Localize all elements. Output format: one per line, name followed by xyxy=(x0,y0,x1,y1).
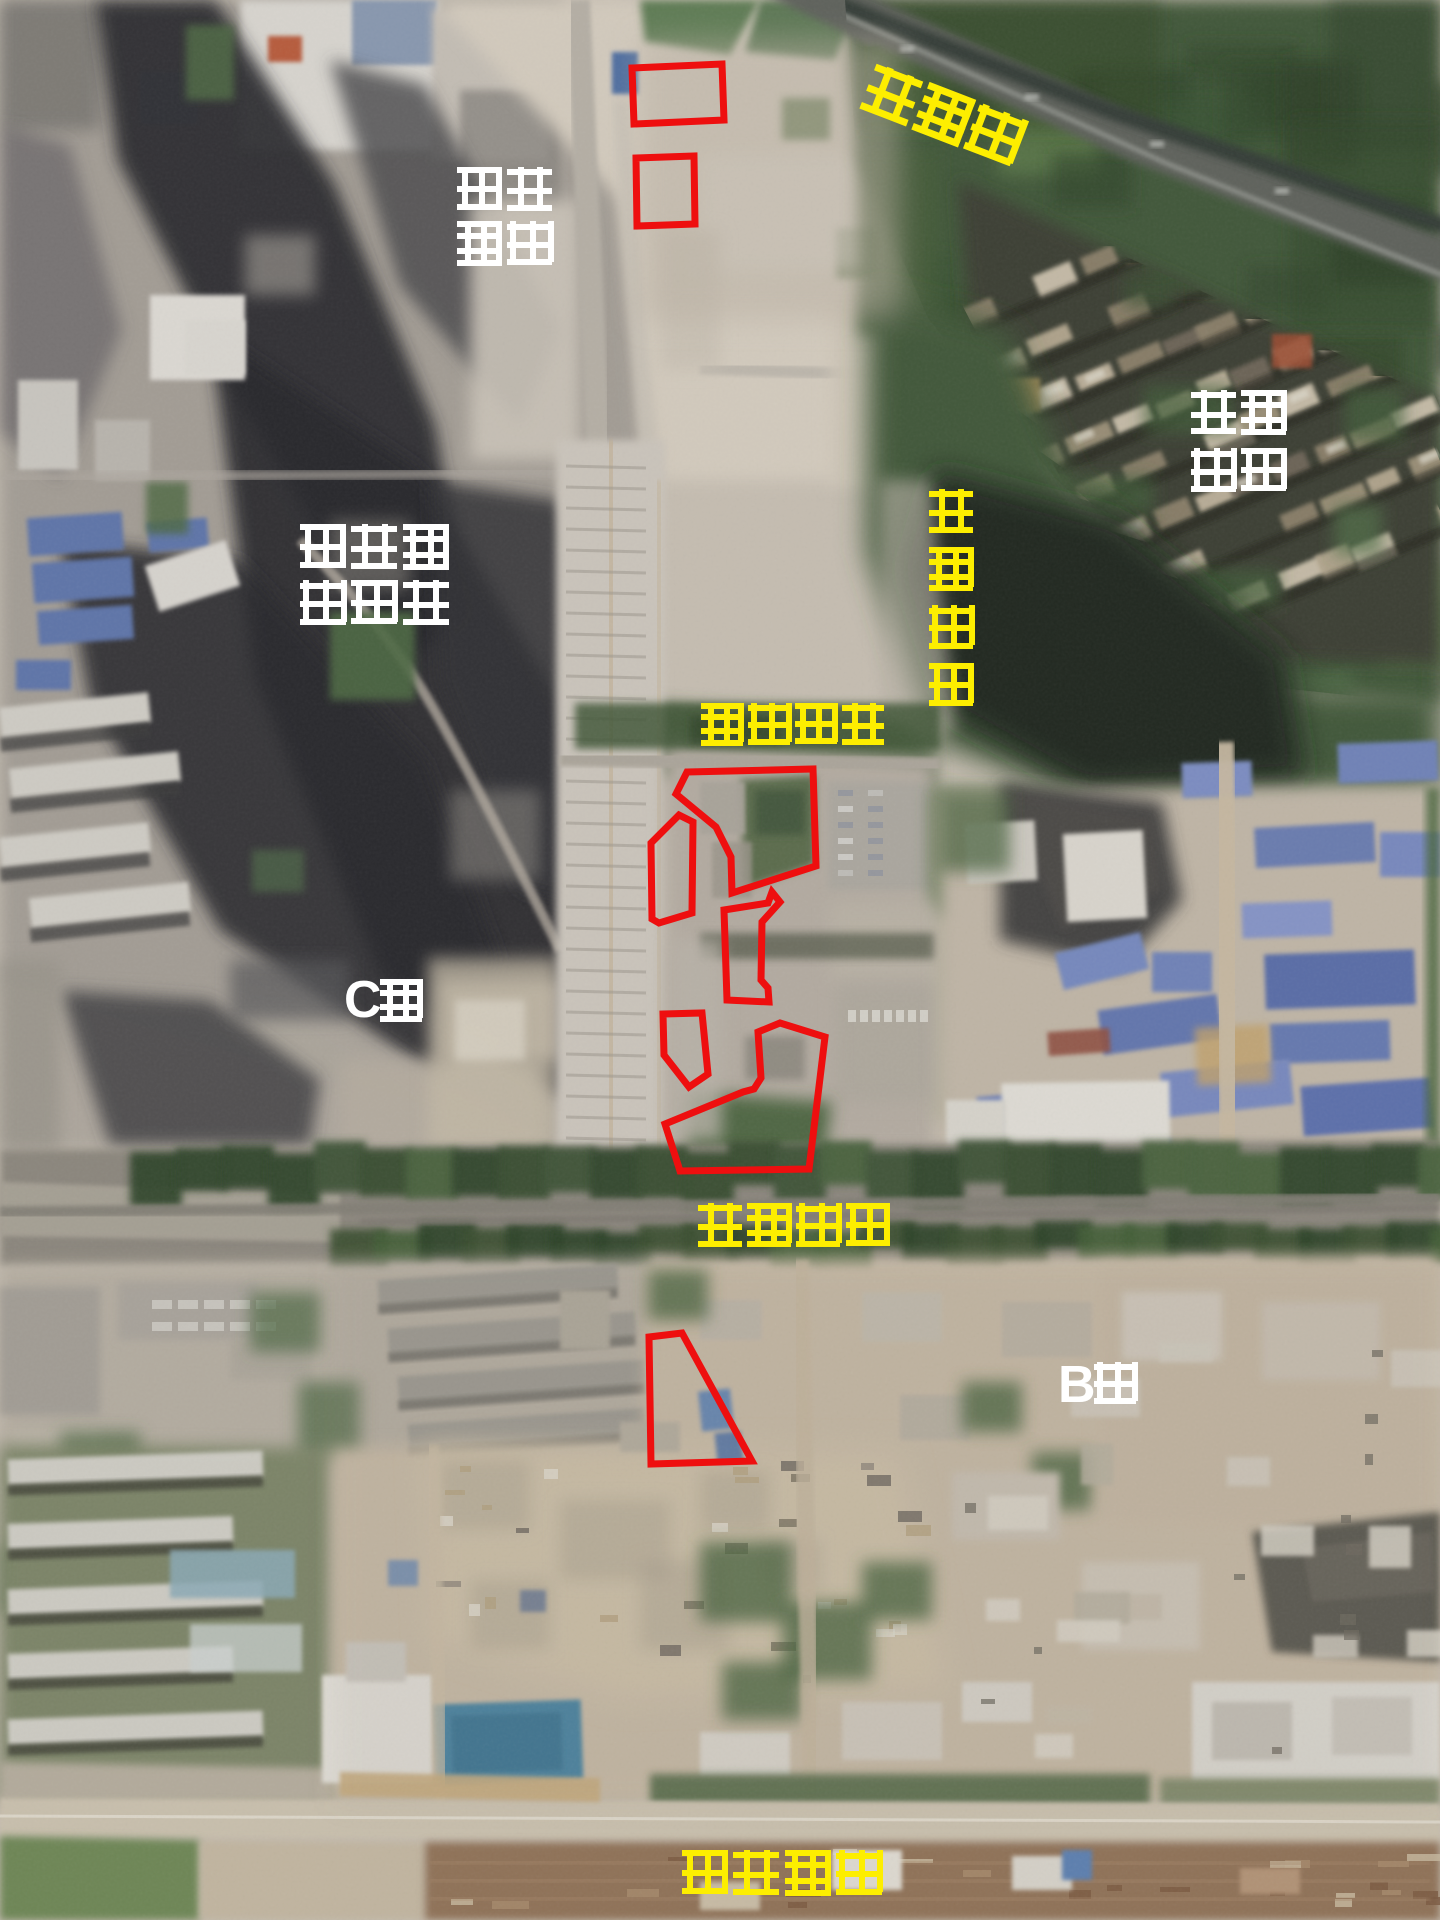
svg-text:C: C xyxy=(344,971,382,1029)
svg-text:B: B xyxy=(1058,1356,1096,1414)
